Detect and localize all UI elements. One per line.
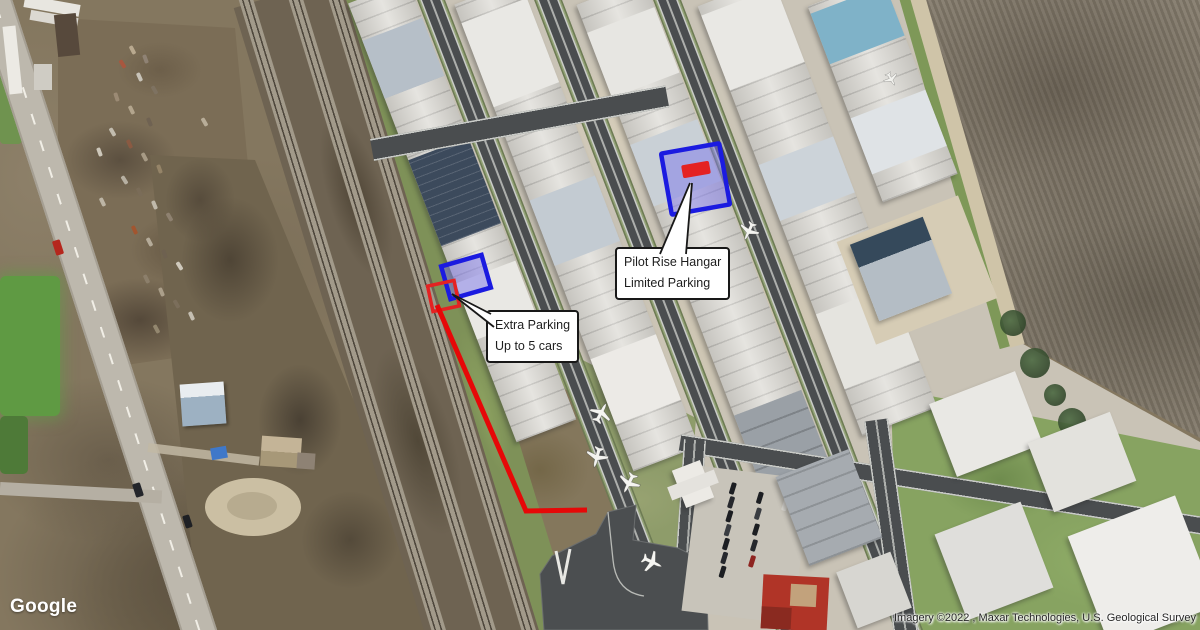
callout-line: Up to 5 cars: [495, 336, 570, 357]
highlight-rect-extra-parking[interactable]: [441, 255, 491, 299]
callout-line: Limited Parking: [624, 273, 721, 294]
annotation-overlay: [0, 0, 1200, 630]
map-canvas[interactable]: Pilot Rise Hangar Limited Parking Extra …: [0, 0, 1200, 630]
callout-line: Pilot Rise Hangar: [624, 252, 721, 273]
google-logo[interactable]: Google: [10, 596, 77, 618]
callout-extra-parking: Extra Parking Up to 5 cars: [486, 310, 579, 363]
callout-pilot-rise: Pilot Rise Hangar Limited Parking: [615, 247, 730, 300]
highlight-rect-pilot-rise[interactable]: [661, 143, 730, 214]
callout-line: Extra Parking: [495, 315, 570, 336]
imagery-attribution: Imagery ©2022 , Maxar Technologies, U.S.…: [894, 612, 1196, 624]
